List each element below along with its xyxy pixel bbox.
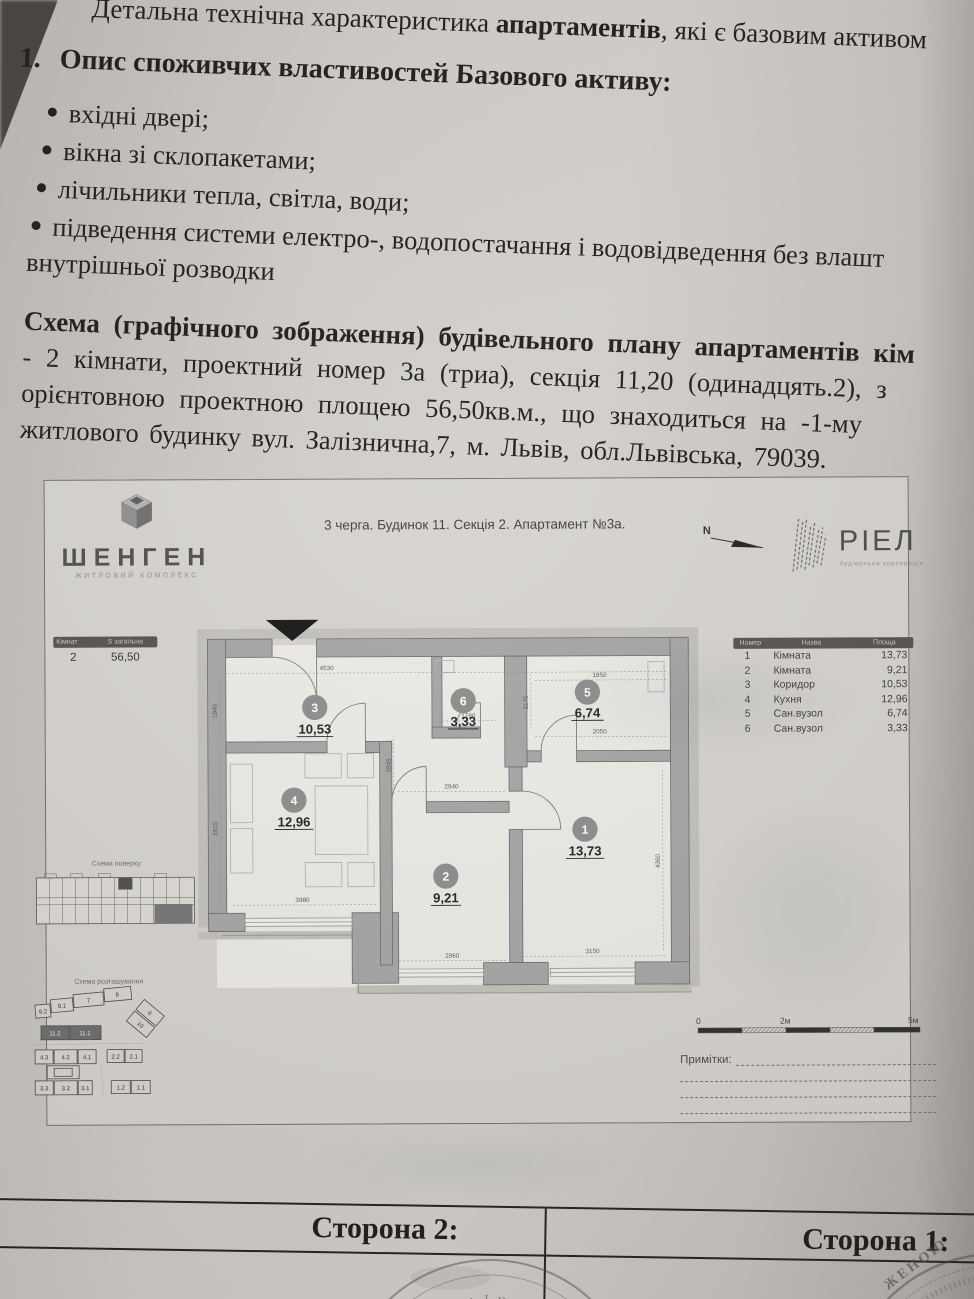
site-block: 3.2 [62,1086,71,1092]
room-2-area: 9,21 [433,890,459,905]
cell-area: 13,73 [867,648,913,663]
site-block: 2.2 [111,1055,120,1061]
ink-bleedthrough [540,640,860,760]
bullet-item: вікна зі склопакетами; [42,135,317,176]
bullet-continuation: внутрішньої розводки [26,247,276,287]
notes-line [737,1051,937,1066]
dim-wc: 2170 [523,695,530,710]
dim-room2-top: 2940 [444,783,459,790]
site-block: 9.2 [39,1009,49,1016]
site-scheme: Схема розташування 9.2 9.1 7 8 6 10 [31,978,188,1111]
room-6-number: 6 [460,694,467,708]
room-4-area: 12,96 [278,814,311,829]
summary-rooms-value: 2 [53,652,93,664]
floor-scheme: Схема поверху [32,860,200,935]
riel-subtitle: будівельна корпорація [840,561,924,567]
notes-section: Примітки: [680,1051,936,1114]
room-2-number: 2 [442,870,449,884]
site-block: 9.1 [58,1003,68,1010]
dim-room1: 3150 [585,948,600,955]
dim-hall: 2845 [386,758,393,773]
dim-kitchen: 3980 [295,897,310,904]
intro-line: Детальна технічна характеристика апартам… [91,0,927,55]
site-block-highlighted: 11.1 [79,1031,91,1037]
site-block-highlighted: 11.2 [49,1031,61,1037]
room-3-area: 10,53 [298,722,331,737]
room-6-area: 3,33 [450,714,476,729]
cell-area: 12,96 [868,692,914,707]
dim-left: 3815 [212,821,219,836]
north-arrowhead [731,540,763,548]
stamp-left: У К Р А Ї Н А [340,1238,640,1299]
site-block: 4.3 [40,1055,49,1061]
bullet-icon [48,108,57,117]
bullet-text: лічильники тепла, світла, води; [57,174,410,217]
notes-line [680,1097,936,1114]
room-4-number: 4 [291,794,298,808]
summary-col-area: S загальна [96,638,154,645]
room-1-number: 1 [582,823,589,837]
highlighted-unit-marker [118,878,132,890]
site-scheme-drawing: 9.2 9.1 7 8 6 10 11.2 11.1 4.3 4 [33,985,186,1106]
floor-scheme-drawing [34,867,199,930]
dim-room2: 2960 [445,953,460,960]
svg-text:У К Р А Ї Н А: У К Р А Ї Н А [419,1295,526,1299]
dim-left-top: 1945 [212,703,219,718]
stamp-right: ЖЕНОЮ [836,1228,974,1299]
summary-row: 2 56,50 [53,647,157,663]
north-arrow: N [697,520,773,561]
plan-title: 3 черга. Будинок 11. Секція 2. Апартамен… [275,516,675,533]
summary-area-value: 56,50 [93,651,157,663]
bullet-icon [42,146,51,155]
dim-room1-right: 4360 [655,854,662,869]
document-text-block: Детальна технічна характеристика апартам… [0,0,973,506]
shengen-subtitle: ЖИТЛОВИЙ КОМПЛЕКС [57,572,217,580]
bullet-icon [37,183,46,192]
col-area: Площа [858,639,910,646]
intro-bold: апартаментів [495,8,661,44]
summary-table: Кімнат S загальна 2 56,50 [53,636,157,663]
cell-area: 10,53 [867,677,913,692]
room-3-number: 3 [311,701,318,715]
intro-post: , які є базовим активом [661,14,928,54]
shengen-logo: ШЕНГЕН ЖИТЛОВИЙ КОМПЛЕКС [57,490,217,580]
bullet-text: вхідні двері; [68,98,209,133]
site-block: 1.1 [137,1085,146,1091]
intro-pre: Детальна технічна характеристика [91,0,496,38]
bullet-text: вікна зі склопакетами; [63,136,317,175]
riel-name: РІЕЛ [839,525,917,558]
ink-bleedthrough [700,800,920,1020]
bullet-icon [31,221,40,230]
summary-header: Кімнат S загальна [53,636,157,647]
site-block: 3.1 [81,1086,90,1092]
shengen-name: ШЕНГЕН [57,543,217,573]
bullet-item: лічильники тепла, світла, води; [36,173,410,218]
site-block: 4.1 [83,1055,92,1061]
highlighted-unit [154,904,192,923]
site-block: 1.2 [117,1086,126,1092]
room-1-area: 13,73 [569,843,602,858]
notes-line [680,1065,936,1082]
site-block: 4.2 [61,1055,70,1061]
summary-col-rooms: Кімнат [56,639,96,646]
document-photo: Детальна технічна характеристика апартам… [0,0,974,1299]
bullet-item: вхідні двері; [47,97,209,134]
section1-number: 1. [19,42,41,75]
site-block: 3.3 [40,1086,49,1092]
site-block: 2.1 [129,1054,138,1060]
notes-line [680,1081,936,1098]
ink-bleedthrough [300,1130,620,1200]
north-label: N [703,525,711,537]
cell-area: 3,33 [868,721,914,736]
dim-top: 4530 [320,665,335,672]
riel-icon [783,507,837,577]
shengen-cube-icon [114,490,160,536]
cell-area: 6,74 [868,706,914,721]
riel-logo: РІЕЛ будівельна корпорація [783,507,913,583]
notes-label: Примітки: [680,1054,732,1066]
stamp-left-text: У К Р А Ї Н А [419,1295,526,1299]
cell-area: 9,21 [867,663,913,678]
section1-title: Опис споживчих властивостей Базового акт… [59,44,672,99]
